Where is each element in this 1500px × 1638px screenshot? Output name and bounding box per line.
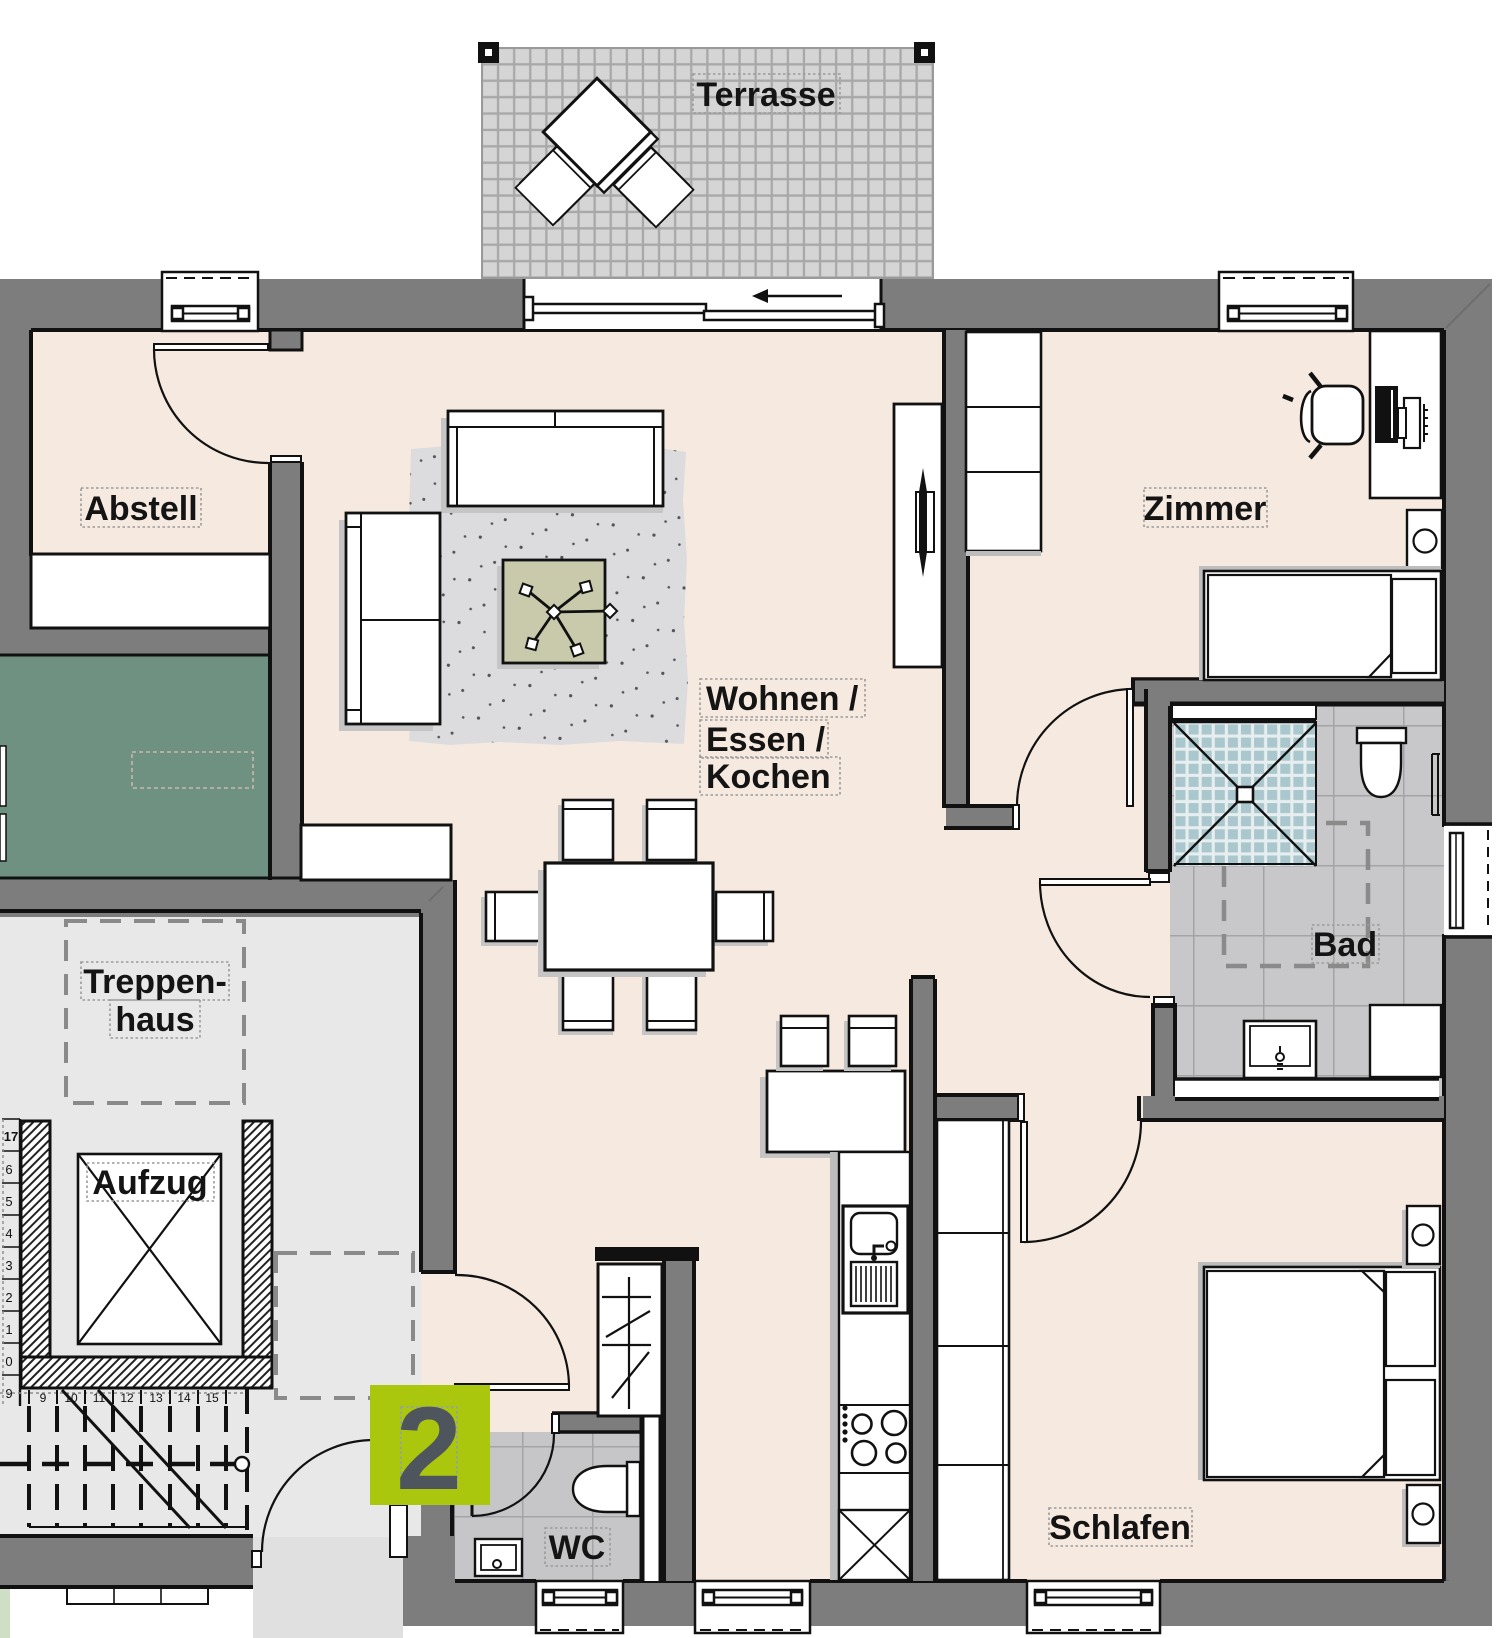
svg-text:Abstell: Abstell <box>84 490 197 528</box>
svg-text:Wohnen /: Wohnen / <box>706 680 859 718</box>
svg-text:6: 6 <box>5 1162 12 1177</box>
svg-text:4: 4 <box>5 1226 12 1241</box>
svg-text:Bad: Bad <box>1313 926 1377 964</box>
svg-text:Zimmer: Zimmer <box>1144 490 1267 528</box>
svg-text:Terrasse: Terrasse <box>696 76 835 114</box>
svg-text:Treppen-: Treppen- <box>83 963 227 1001</box>
svg-text:Essen /: Essen / <box>706 721 826 759</box>
svg-text:0: 0 <box>5 1354 12 1369</box>
svg-text:9: 9 <box>40 1391 47 1405</box>
svg-text:13: 13 <box>149 1391 163 1405</box>
svg-text:14: 14 <box>177 1391 191 1405</box>
svg-text:1: 1 <box>5 1322 12 1337</box>
svg-text:2: 2 <box>396 1383 462 1515</box>
svg-text:15: 15 <box>205 1391 219 1405</box>
svg-text:WC: WC <box>549 1529 606 1567</box>
svg-text:17: 17 <box>4 1129 18 1144</box>
svg-text:haus: haus <box>115 1001 194 1039</box>
svg-text:Aufzug: Aufzug <box>92 1164 207 1202</box>
svg-text:12: 12 <box>120 1391 134 1405</box>
svg-text:2: 2 <box>5 1290 12 1305</box>
svg-text:Schlafen: Schlafen <box>1049 1509 1191 1547</box>
svg-text:5: 5 <box>5 1194 12 1209</box>
svg-text:Kochen: Kochen <box>706 758 831 796</box>
svg-text:3: 3 <box>5 1258 12 1273</box>
